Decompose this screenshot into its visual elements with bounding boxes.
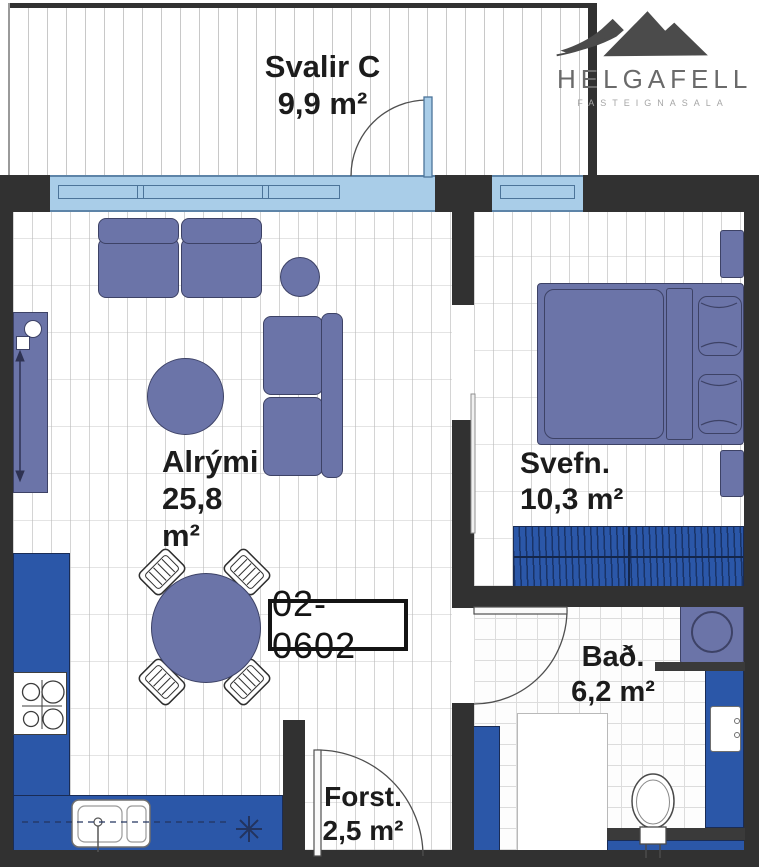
- shower: [517, 713, 608, 852]
- balcony-label: Svalir C 9,9 m²: [230, 48, 415, 122]
- nightstand: [720, 450, 744, 497]
- bathroom-area: 6,2 m²: [548, 675, 678, 710]
- sofa-seat: [263, 397, 323, 476]
- pillow: [698, 374, 742, 434]
- bedroom-window: [492, 175, 583, 212]
- nightstand: [720, 230, 744, 278]
- dining-table: [151, 573, 261, 683]
- wall: [452, 703, 474, 852]
- wall: [0, 175, 13, 867]
- sofa-back-cushion: [98, 218, 179, 244]
- stove: [13, 672, 67, 735]
- sofa-seat: [263, 316, 323, 395]
- bedroom-area: 10,3 m²: [520, 482, 623, 518]
- window-mullion: [262, 185, 269, 199]
- bathroom-label: Bað. 6,2 m²: [548, 640, 678, 710]
- mountains-icon: [552, 4, 748, 60]
- wardrobe-divider: [628, 527, 630, 587]
- wardrobe: [513, 526, 744, 588]
- sofa-back-cushion: [181, 218, 262, 244]
- mattress: [544, 289, 664, 439]
- bathroom-name: Bað.: [548, 640, 678, 675]
- logo-title: HELGAFELL: [552, 64, 748, 95]
- balcony-door-threshold: [348, 175, 435, 212]
- floor-plan-canvas: Svalir C 9,9 m² Alrými 25,8 m² Svefn. 10…: [0, 0, 759, 867]
- bedroom-label: Svefn. 10,3 m²: [520, 446, 623, 518]
- living-name: Alrými: [162, 443, 258, 480]
- agency-logo: HELGAFELL FASTEIGNASALA: [552, 4, 748, 108]
- window-glazing: [500, 185, 575, 199]
- hall-area: 2,5 m²: [302, 814, 424, 848]
- bed: [537, 283, 744, 445]
- sofa-seat: [98, 238, 179, 298]
- bath-ledge: [607, 828, 745, 840]
- balcony-name: Svalir C: [230, 48, 415, 85]
- coffee-table: [147, 358, 224, 435]
- hall-name: Forst.: [302, 780, 424, 814]
- sofa-seat: [181, 238, 262, 298]
- bed-panel: [666, 288, 693, 440]
- living-window: [50, 175, 348, 212]
- window-mullion: [137, 185, 144, 199]
- living-area-value: 25,8: [162, 480, 258, 517]
- bathroom-sink: [710, 706, 741, 752]
- sofa-vertical: [263, 313, 343, 478]
- device-box: [16, 336, 30, 350]
- window-glazing: [58, 185, 340, 199]
- wall: [435, 175, 492, 212]
- living-label: Alrými 25,8 m²: [162, 443, 258, 555]
- wall: [452, 420, 474, 608]
- unit-number: 02-0602: [272, 583, 404, 667]
- unit-number-badge: 02-0602: [268, 599, 408, 651]
- wall: [744, 212, 759, 867]
- living-area-unit: m²: [162, 517, 258, 554]
- bedroom-name: Svefn.: [520, 446, 623, 482]
- hall-label: Forst. 2,5 m²: [302, 780, 424, 847]
- wall: [8, 3, 597, 8]
- sofa-back-cushion: [321, 313, 343, 478]
- sofa-horizontal: [98, 218, 262, 298]
- washer-drum: [691, 611, 733, 653]
- wall: [452, 586, 744, 607]
- wall: [452, 212, 474, 305]
- balcony-area: 9,9 m²: [230, 85, 415, 122]
- wall: [0, 850, 759, 867]
- pillow: [698, 296, 742, 356]
- logo-subtitle: FASTEIGNASALA: [552, 98, 748, 108]
- balcony-edge: [8, 3, 10, 177]
- pouf: [280, 257, 320, 297]
- wall: [583, 175, 759, 212]
- washing-machine: [680, 602, 744, 663]
- kitchen-counter-bottom: [13, 795, 283, 852]
